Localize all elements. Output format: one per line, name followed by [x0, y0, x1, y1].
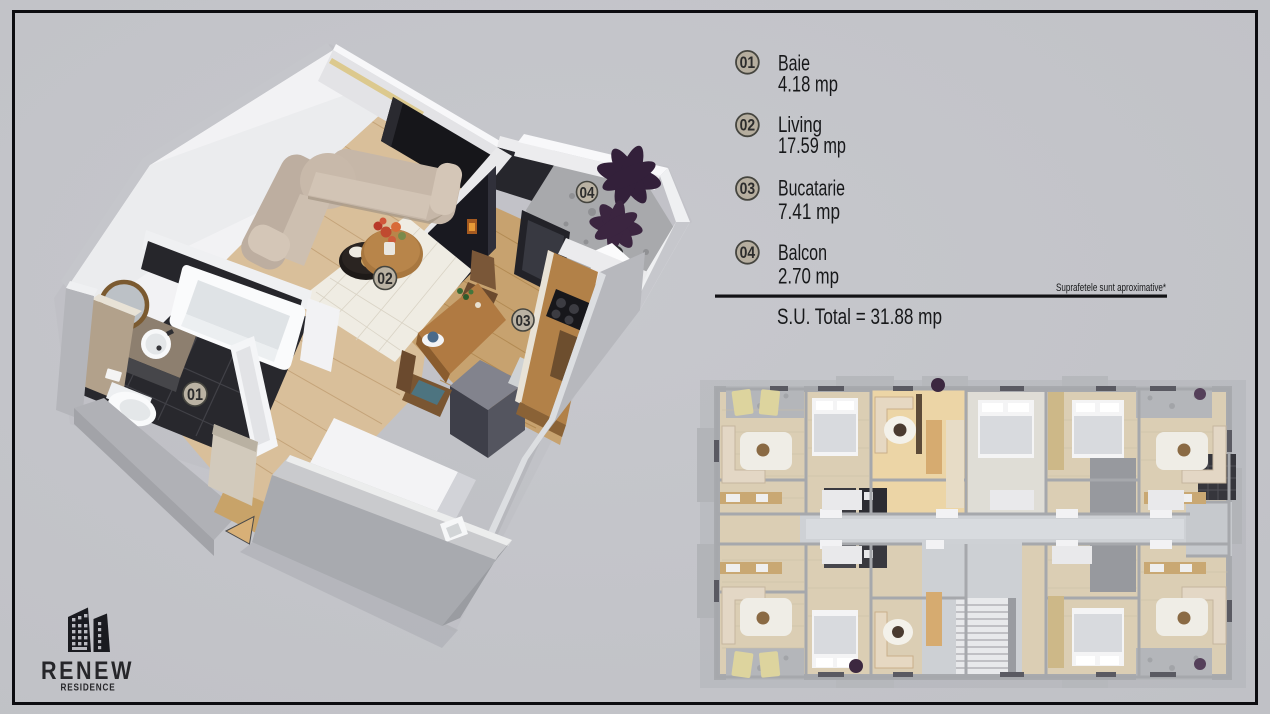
- svg-text:03: 03: [516, 313, 531, 330]
- svg-text:01: 01: [740, 53, 756, 72]
- svg-text:4.18 mp: 4.18 mp: [778, 72, 838, 97]
- svg-text:02: 02: [377, 270, 393, 288]
- svg-text:RENEW: RENEW: [41, 657, 134, 685]
- svg-text:04: 04: [580, 185, 595, 202]
- svg-text:03: 03: [740, 179, 756, 198]
- svg-text:17.59 mp: 17.59 mp: [778, 133, 846, 158]
- svg-text:Bucatarie: Bucatarie: [778, 176, 845, 201]
- svg-text:S.U. Total = 31.88 mp: S.U. Total = 31.88 mp: [777, 304, 942, 329]
- svg-text:7.41 mp: 7.41 mp: [778, 199, 840, 224]
- svg-text:Balcon: Balcon: [778, 240, 827, 265]
- svg-text:2.70 mp: 2.70 mp: [778, 264, 839, 289]
- svg-text:02: 02: [740, 116, 756, 135]
- svg-text:Suprafetele sunt aproximative*: Suprafetele sunt aproximative*: [1056, 282, 1167, 294]
- svg-text:01: 01: [187, 385, 203, 404]
- svg-text:04: 04: [740, 243, 756, 262]
- svg-text:RESIDENCE: RESIDENCE: [61, 683, 116, 694]
